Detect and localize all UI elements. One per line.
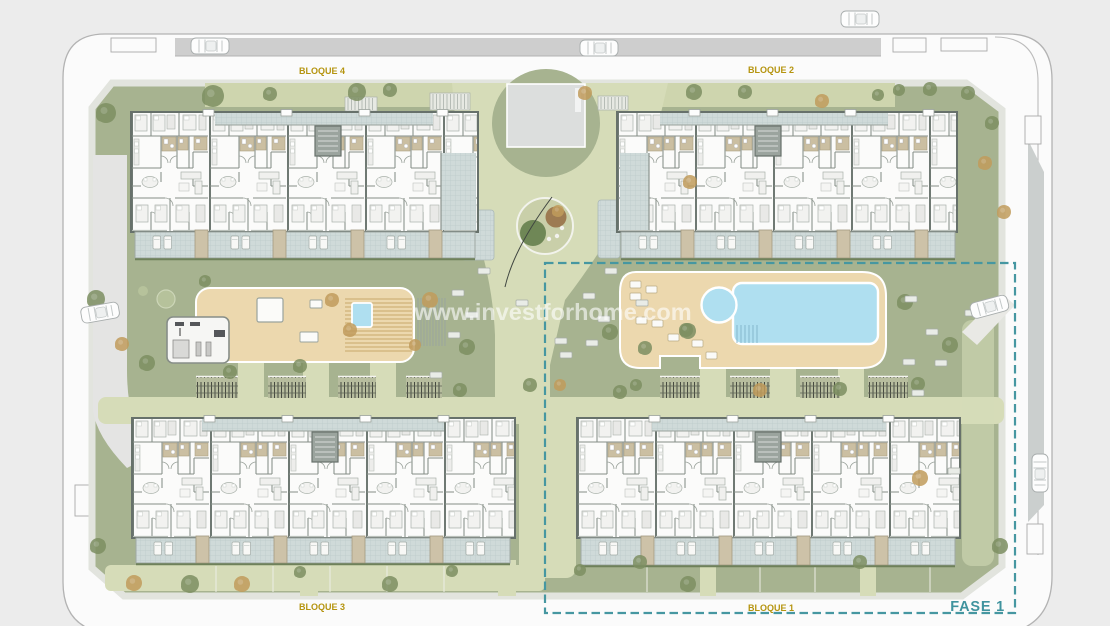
svg-text:BLOQUE 4: BLOQUE 4 (299, 66, 345, 76)
svg-text:BLOQUE 3: BLOQUE 3 (299, 602, 345, 612)
svg-text:BLOQUE 2: BLOQUE 2 (748, 65, 794, 75)
svg-text:BLOQUE 1: BLOQUE 1 (748, 603, 794, 613)
svg-text:www.investforhome.com: www.investforhome.com (413, 299, 691, 325)
svg-text:FASE 1: FASE 1 (950, 599, 1005, 615)
